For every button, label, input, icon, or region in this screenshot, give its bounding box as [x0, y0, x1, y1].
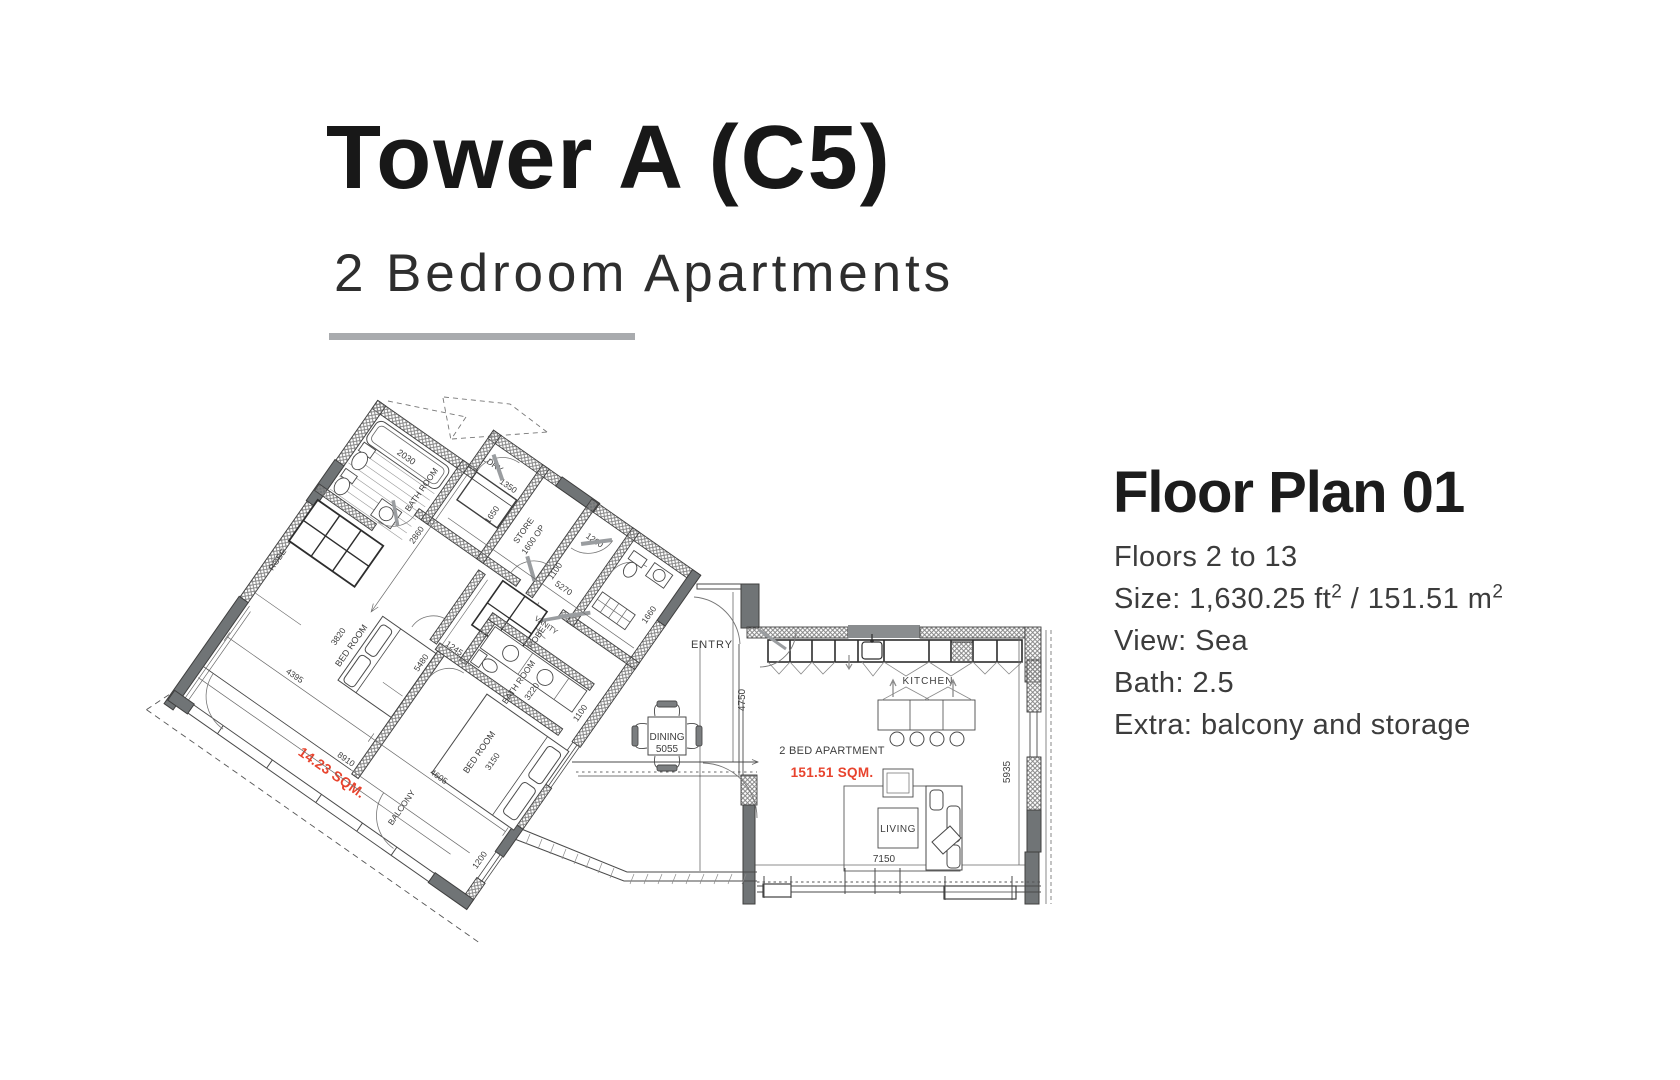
svg-text:3820: 3820	[329, 626, 348, 647]
svg-text:7150: 7150	[873, 854, 896, 865]
svg-text:1200: 1200	[470, 849, 489, 870]
svg-text:2 BED APARTMENT: 2 BED APARTMENT	[779, 745, 885, 757]
svg-text:2860: 2860	[407, 524, 426, 545]
svg-text:ENTRY: ENTRY	[691, 639, 733, 651]
svg-text:5055: 5055	[656, 744, 679, 755]
svg-text:KITCHEN: KITCHEN	[903, 676, 954, 687]
svg-text:8910: 8910	[336, 750, 357, 769]
svg-text:5270: 5270	[553, 578, 574, 597]
svg-text:DINING: DINING	[650, 732, 685, 743]
svg-text:151.51 SQM.: 151.51 SQM.	[791, 765, 874, 780]
svg-text:BALCONY: BALCONY	[386, 788, 418, 827]
svg-text:LIVING: LIVING	[880, 824, 916, 835]
svg-text:5935: 5935	[1002, 760, 1013, 783]
svg-text:4395: 4395	[284, 666, 305, 685]
